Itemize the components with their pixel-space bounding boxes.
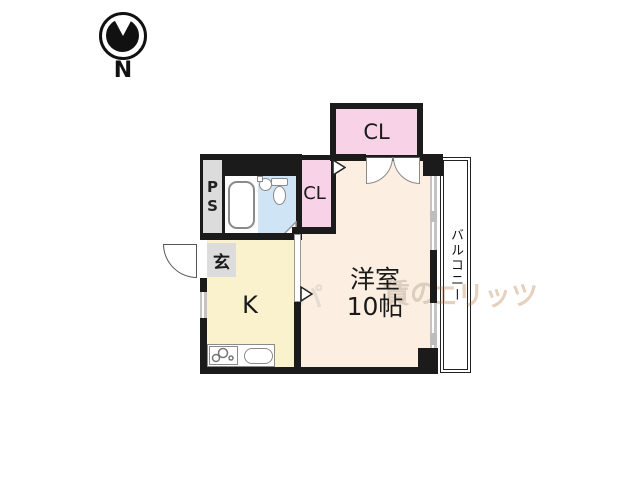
bath-block: PS [200,154,302,240]
toilet-tank-icon [271,178,288,186]
wall-bath-bottom [200,233,302,240]
main-room-name-label: 洋室 [320,266,430,293]
balcony: バルコニー [440,157,471,373]
wall-left-mid [200,278,207,292]
kitchen-window [200,292,207,318]
watermark-fragment-right: エリッツ [430,274,538,313]
closet-top-label: CL [336,109,417,155]
door-direction-marker-closet-icon [332,159,346,176]
wall-kitchen-room-divider [294,302,301,368]
kitchen-sink-icon [244,348,273,364]
wall-left-lower [200,318,207,374]
wall-corner-bottom-right [418,348,438,368]
main-room-size-label: 10帖 [320,293,430,320]
compass-north-arrow-icon [114,19,132,36]
pipe-space-label: PS [204,178,222,216]
washbasin-tap-icon [257,176,263,182]
compass-north-label: N [99,58,147,83]
toilet-bowl-icon [273,186,286,205]
compass-disk [106,19,139,52]
door-direction-marker-kitchen-icon [300,286,313,302]
entrance-label: 玄 [213,248,230,273]
stove-icon [209,346,238,365]
pipe-space: PS [203,160,222,233]
floorplan-page: N バルコニー パ 賃の エリッツ PS [0,0,640,480]
stove-burners-icon [210,347,236,363]
window-mullion-lower [430,333,437,345]
wall-closet-small-bottom [292,227,336,234]
compass-icon [99,12,147,60]
window-mullion-upper [430,211,437,222]
wall-corner-top-right [423,154,443,176]
wall-bottom [200,367,438,374]
closet-small-label: CL [298,160,331,227]
wall-right-mid [430,250,437,303]
kitchen-label: K [225,290,275,320]
bathtub-icon [228,181,255,229]
entrance-genkan-box: 玄 [207,243,236,277]
entrance-door-icon [163,244,197,278]
balcony-inner: バルコニー [443,160,468,370]
